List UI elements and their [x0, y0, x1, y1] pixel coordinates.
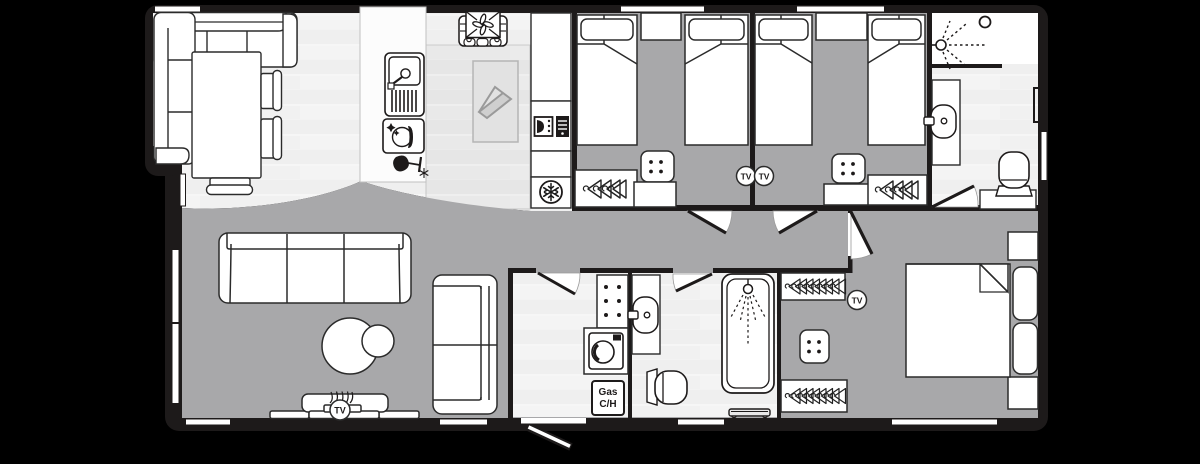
- svg-text:C/H: C/H: [599, 399, 616, 410]
- svg-text:Gas: Gas: [599, 387, 618, 398]
- svg-text:TV: TV: [852, 296, 863, 306]
- svg-text:TV: TV: [334, 406, 346, 416]
- svg-text:TV: TV: [741, 172, 752, 182]
- svg-text:TV: TV: [759, 172, 770, 182]
